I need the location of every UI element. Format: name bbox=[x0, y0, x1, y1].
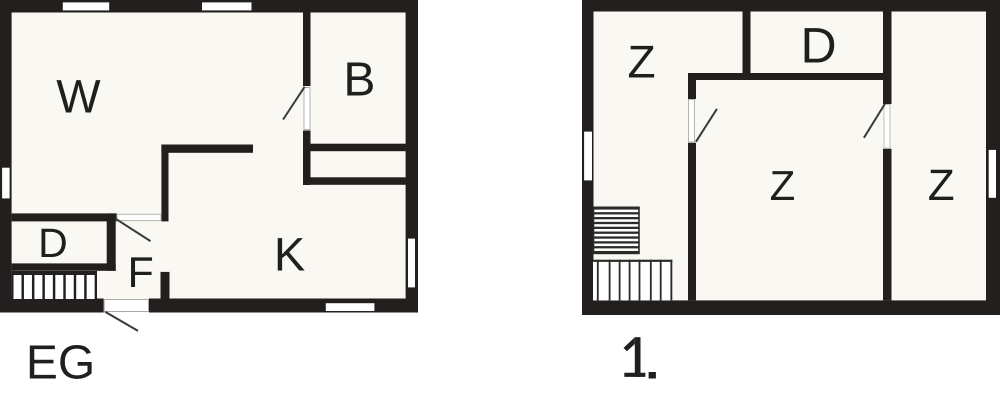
svg-text:K: K bbox=[274, 227, 305, 280]
svg-text:D: D bbox=[38, 220, 68, 266]
svg-text:D: D bbox=[800, 18, 836, 74]
svg-text:B: B bbox=[343, 54, 375, 107]
svg-text:F: F bbox=[128, 249, 154, 297]
svg-text:EG: EG bbox=[26, 337, 95, 390]
svg-text:W: W bbox=[56, 69, 101, 122]
svg-text:Z: Z bbox=[928, 161, 955, 210]
svg-text:Z: Z bbox=[770, 162, 796, 209]
svg-text:Z: Z bbox=[627, 36, 655, 88]
